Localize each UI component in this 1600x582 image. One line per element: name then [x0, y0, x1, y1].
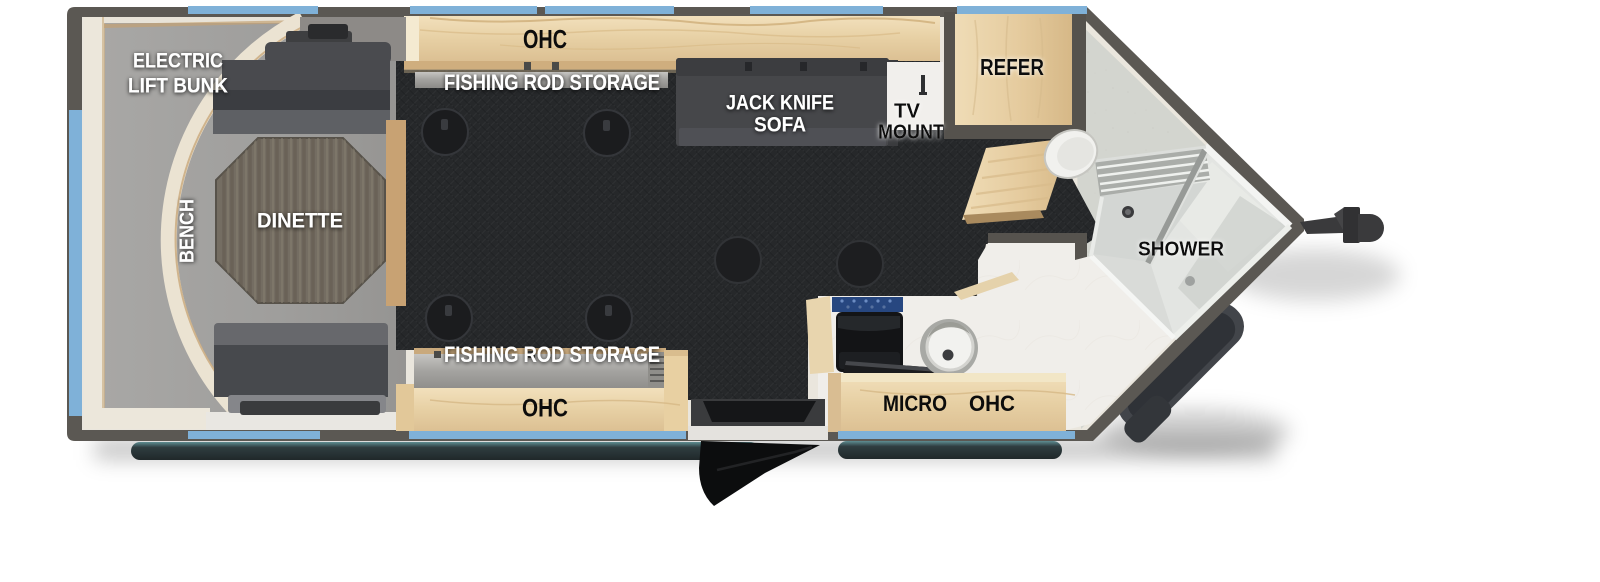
svg-text:BENCH: BENCH	[176, 199, 198, 263]
svg-text:OHC: OHC	[522, 395, 568, 423]
svg-text:MOUNT: MOUNT	[878, 121, 944, 143]
svg-text:MICRO: MICRO	[883, 391, 947, 416]
svg-text:ELECTRIC: ELECTRIC	[133, 50, 223, 73]
svg-text:SOFA: SOFA	[754, 114, 806, 137]
svg-text:JACK KNIFE: JACK KNIFE	[726, 92, 834, 115]
svg-text:FISHING ROD STORAGE: FISHING ROD STORAGE	[444, 70, 660, 95]
svg-text:OHC: OHC	[969, 391, 1015, 416]
svg-text:FISHING ROD STORAGE: FISHING ROD STORAGE	[444, 342, 660, 367]
svg-text:SHOWER: SHOWER	[1138, 238, 1225, 260]
svg-text:LIFT BUNK: LIFT BUNK	[128, 75, 228, 98]
svg-text:DINETTE: DINETTE	[257, 210, 343, 233]
svg-text:TV: TV	[894, 100, 921, 122]
svg-text:REFER: REFER	[980, 54, 1044, 80]
svg-text:OHC: OHC	[523, 24, 567, 54]
